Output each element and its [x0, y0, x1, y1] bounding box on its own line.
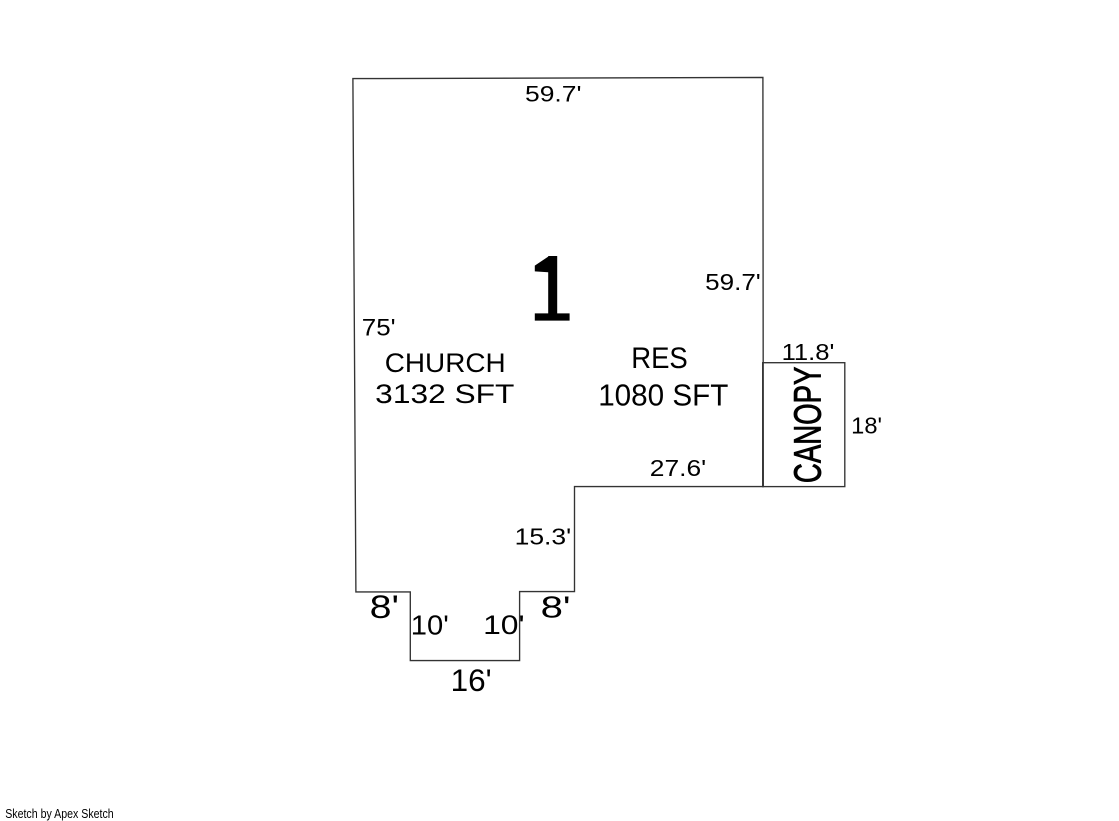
svg-text:16': 16' [451, 662, 492, 698]
svg-text:59.7': 59.7' [525, 82, 582, 107]
svg-text:10': 10' [483, 609, 524, 640]
svg-text:11.8': 11.8' [782, 339, 835, 365]
svg-text:18': 18' [851, 413, 882, 439]
svg-text:1080 SFT: 1080 SFT [598, 378, 728, 413]
svg-text:8': 8' [541, 589, 571, 624]
svg-text:75': 75' [362, 315, 396, 342]
svg-text:Sketch by Apex Sketch: Sketch by Apex Sketch [5, 806, 114, 821]
svg-text:3132 SFT: 3132 SFT [375, 379, 514, 409]
svg-text:59.7': 59.7' [705, 269, 761, 295]
svg-text:15.3': 15.3' [515, 523, 572, 549]
svg-text:CHURCH: CHURCH [385, 348, 506, 378]
svg-text:RES: RES [631, 342, 688, 375]
svg-text:8': 8' [370, 589, 399, 625]
svg-text:CANOPY: CANOPY [787, 367, 830, 484]
svg-text:10': 10' [411, 610, 449, 641]
svg-text:27.6': 27.6' [650, 455, 706, 481]
